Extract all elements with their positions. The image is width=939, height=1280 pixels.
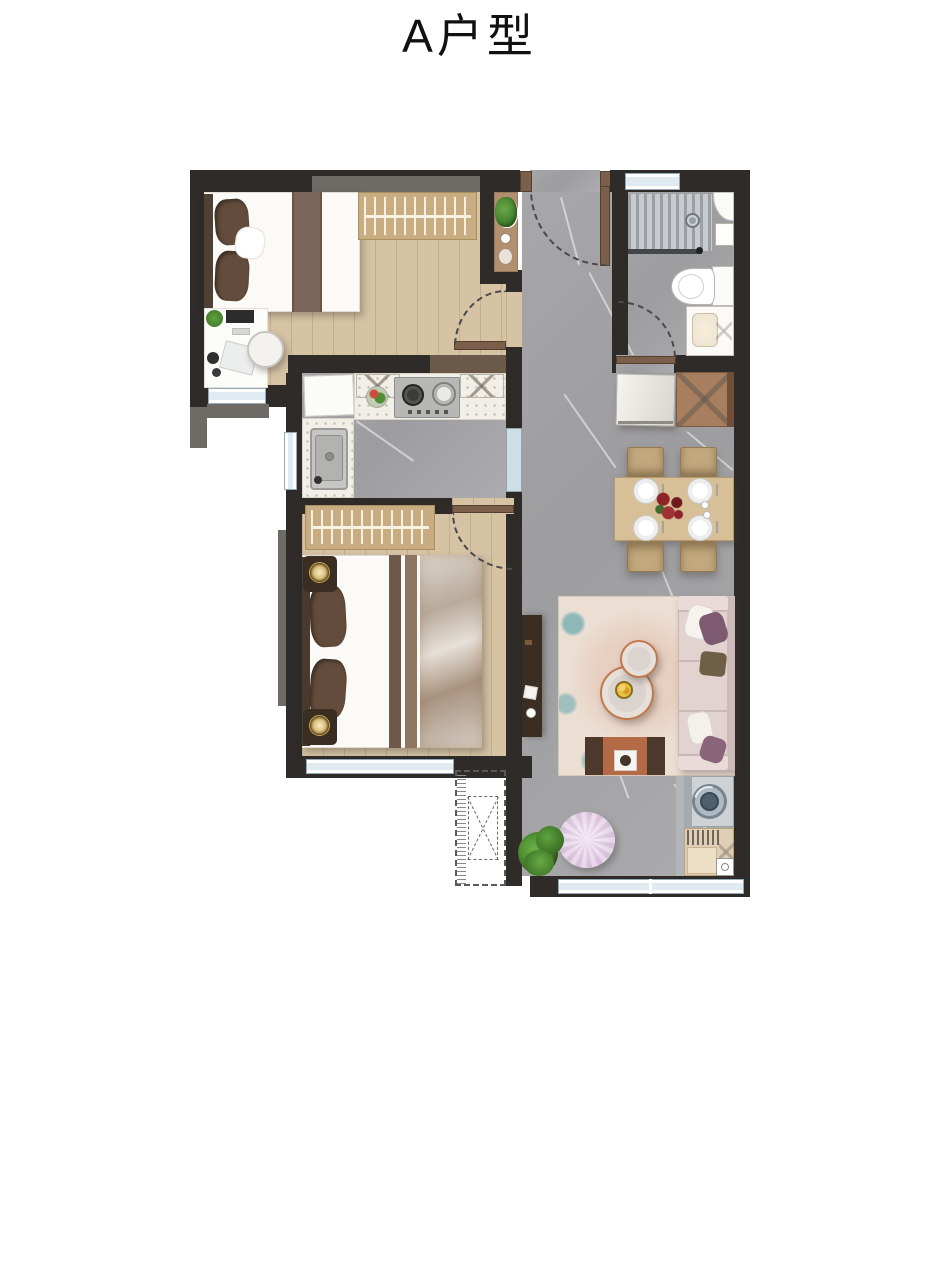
plan-title: A户型 [0,0,939,66]
bedroom2-door-leaf [452,505,514,513]
stove-burner-pot [432,382,456,406]
dining-plate [687,515,713,541]
washing-machine-strip [684,776,692,827]
kitchen-fridge [303,374,354,417]
shower-handle [696,247,703,254]
dining-chair [627,447,664,478]
desk-cup [207,352,219,364]
wall-bedroom1-east [480,170,494,284]
nightstand-lamp [309,562,330,583]
dining-candle [701,501,709,509]
hall-cabinet-side [727,372,734,427]
entry-decor-plate [498,248,513,265]
bedroom2-west-gray-stub [278,530,286,706]
dining-flowers [653,489,687,523]
dining-chair [627,541,664,572]
wall-spine [506,283,522,886]
sink-drain [325,452,334,461]
sofa-pillow-olive [699,651,727,678]
bedroom1-sill-gray [207,404,269,418]
wall-bedroom2-west [286,498,302,778]
nightstand-lamp [309,715,330,736]
bathroom-window [625,173,680,190]
desk-plant [206,310,223,327]
bedroom1-window [208,388,266,404]
sink-faucet [314,476,322,484]
bedroom2-window [306,759,454,774]
desk-monitor [226,310,254,323]
hall-cabinet [676,372,734,427]
toilet-seat [678,274,704,299]
dining-plate [687,478,713,504]
kitchen-glass-door [506,428,522,492]
floor-drain [721,863,729,871]
hall-fridge-handle [618,421,673,424]
shower-glass-door [628,249,702,254]
laundry-mat [687,847,717,874]
wardrobe-rod [364,215,471,218]
entry-decor-bowl [500,233,511,244]
bedroom1-headboard [204,194,213,310]
living-plant-leaf [524,850,554,876]
tv-console-paper [523,685,538,700]
bedroom2-runner [405,555,417,748]
laundry-side-panel [676,776,684,876]
laundry-cabinet-slats [687,830,719,845]
desk-mouse [212,368,221,377]
bench-end [585,737,603,775]
entry-threshold [530,170,600,192]
tv-console-item [525,640,532,645]
tv-console-bowl [526,708,536,718]
floor-pouf [558,812,615,868]
stove-burner-wok [402,384,424,406]
coffee-table-small [620,640,658,678]
sofa-back [727,596,735,770]
living-window-mullion [649,879,652,894]
entry-plant [495,197,517,227]
dining-chair [680,541,717,572]
dining-cutlery [716,484,718,496]
wall-kitchen-north-brown [430,355,506,373]
kitchen-veggie-plate [366,386,388,408]
kitchen-window [284,432,297,490]
bedroom1-bed-runner [292,192,322,312]
bedroom2-runner [389,555,401,748]
bedroom2-pillow [308,584,347,648]
ac-platform-louver [457,772,466,884]
stove-knobs [408,410,452,414]
desk-chair [247,331,284,368]
tv-console [522,615,542,737]
bedroom2-blanket [420,555,482,748]
vanity-sink [692,313,718,347]
wall-right [734,170,750,897]
wardrobe2-rod [311,526,429,529]
hall-fridge [615,373,675,426]
bench-tray-item [620,755,631,766]
kitchen-cabinet-x [460,374,504,398]
bench-end [647,737,665,775]
desk-keyboard [232,328,250,335]
wall-top-gray-seg [312,176,484,192]
toilet-tank [712,266,734,306]
wall-left-gray-stub [190,400,207,448]
dining-cutlery [716,521,718,533]
vanity-towel [716,310,732,352]
fruit-bowl [615,681,633,699]
dining-chair [680,447,717,478]
dining-candle [703,511,711,519]
bedroom1-door-opening [506,292,522,347]
entry-door-post-left [520,171,532,192]
bath-shelf [715,223,734,246]
shower-head [685,213,700,228]
